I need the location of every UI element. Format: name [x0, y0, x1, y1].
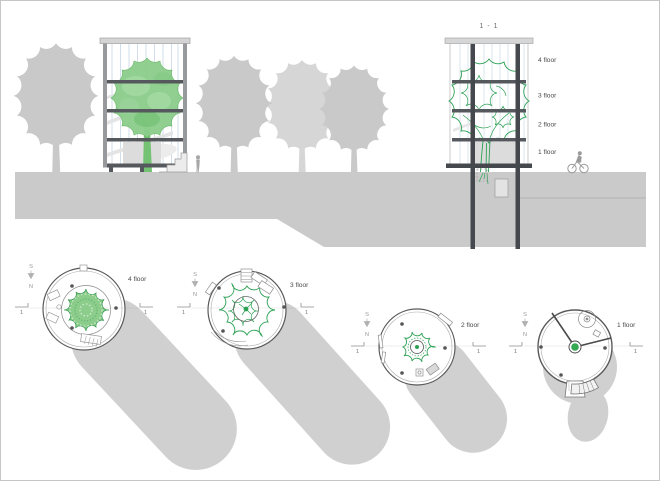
marker-number: 1 — [305, 310, 308, 316]
section-title: 1 - 1 — [479, 23, 498, 30]
marker-number: 1 — [182, 310, 185, 316]
marker-number: 1 — [477, 349, 480, 355]
section-marker-right: 1 — [473, 342, 486, 355]
plan-label-3-floor: 3 floor — [290, 282, 309, 289]
person-icon — [196, 155, 200, 172]
stair-block — [241, 269, 252, 282]
section-marker-left: 1 — [351, 342, 364, 355]
elevation-and-section-band: 1 - 1 — [14, 23, 646, 249]
section-marker-right: 1 — [301, 303, 314, 316]
background-trees — [14, 43, 389, 173]
elevation-view — [100, 38, 190, 172]
drawing-canvas: 1 - 1 — [1, 1, 660, 481]
tree-trunk-top-view — [569, 341, 581, 353]
compass-north-label: N — [523, 332, 527, 338]
compass-south-label: S — [523, 312, 527, 318]
floor-label-2: 2 floor — [538, 122, 557, 129]
bicyclist-icon — [568, 151, 588, 173]
compass-north-label: N — [365, 332, 369, 338]
pile-right — [516, 44, 521, 249]
section-floor-labels: 4 floor 3 floor 2 floor 1 floor — [538, 57, 557, 156]
marker-number: 1 — [634, 349, 637, 355]
marker-number: 1 — [144, 310, 147, 316]
plan-shadows — [54, 281, 617, 481]
section-roof-cap — [445, 38, 533, 44]
compass-icon: S N — [192, 272, 198, 298]
compass-south-label: S — [365, 312, 369, 318]
floor-plans-band: 4 floor S N 1 1 — [15, 264, 643, 481]
compass-south-label: S — [193, 272, 197, 278]
floor-label-3: 3 floor — [538, 93, 557, 100]
tree-silhouette-icon — [196, 56, 273, 173]
section-marker-left: 1 — [509, 342, 522, 355]
plan-label-1-floor: 1 floor — [617, 322, 636, 329]
marker-number: 1 — [514, 349, 517, 355]
tree-silhouette-icon — [14, 43, 99, 173]
plan-label-4-floor: 4 floor — [128, 276, 147, 283]
core-block — [123, 142, 161, 164]
tree-silhouette-icon — [319, 65, 389, 173]
plan-1-floor: 1 floor S N 1 1 — [509, 310, 643, 397]
plan-label-2-floor: 2 floor — [461, 322, 480, 329]
compass-icon: S N — [522, 312, 528, 338]
section-marker-left: 1 — [177, 303, 190, 316]
floor-label-4: 4 floor — [538, 57, 557, 64]
marker-number: 1 — [356, 349, 359, 355]
ground-section-fill — [15, 172, 646, 247]
section-marker-right: 1 — [630, 342, 643, 355]
section-marker-left: 1 — [15, 303, 28, 316]
roof-cap — [100, 38, 190, 44]
floor-label-1: 1 floor — [538, 149, 557, 156]
compass-icon: S N — [364, 312, 370, 338]
compass-north-label: N — [193, 292, 197, 298]
pile-left — [471, 44, 476, 249]
compass-icon: S N — [28, 264, 34, 290]
compass-south-label: S — [29, 264, 33, 270]
compass-north-label: N — [29, 284, 33, 290]
marker-number: 1 — [20, 310, 23, 316]
architectural-sheet: 1 - 1 — [0, 0, 660, 481]
